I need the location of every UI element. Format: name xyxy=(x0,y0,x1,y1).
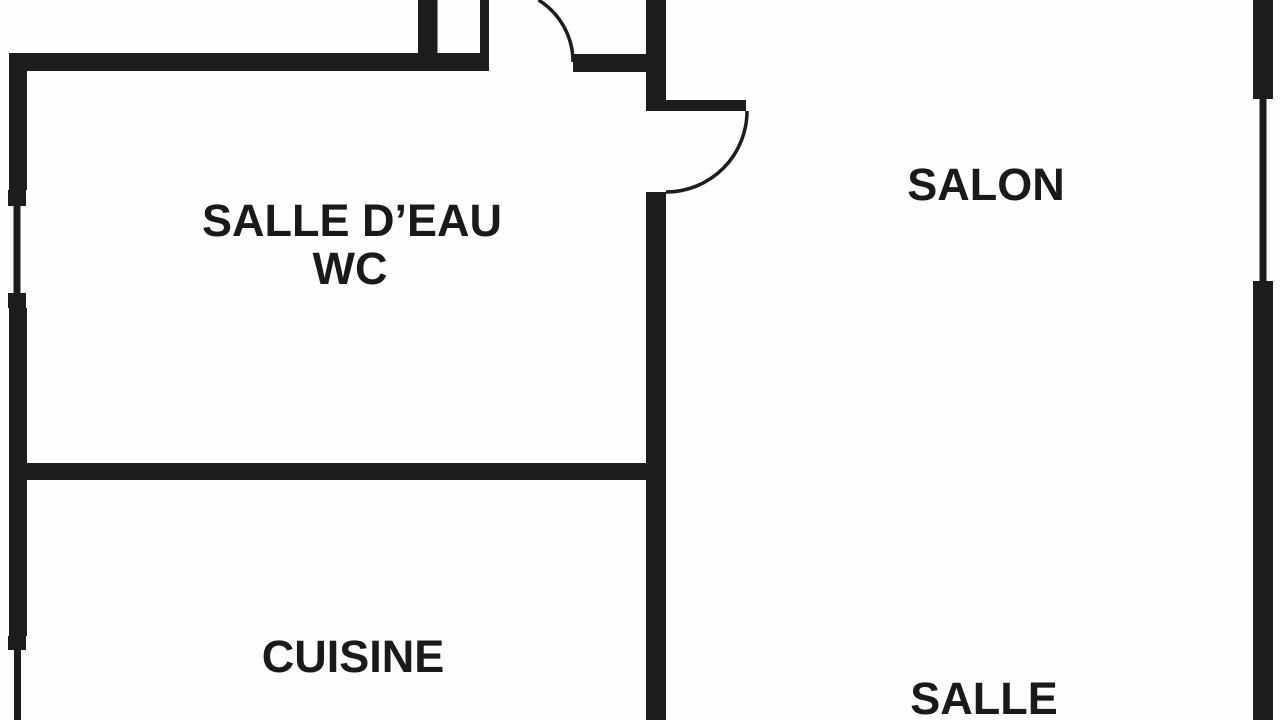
svg-text:CUISINE: CUISINE xyxy=(262,631,445,682)
svg-text:SALON: SALON xyxy=(907,159,1065,210)
svg-text:SALLE: SALLE xyxy=(910,673,1058,720)
svg-text:SALLE D’EAU: SALLE D’EAU xyxy=(202,195,502,246)
svg-text:WC: WC xyxy=(313,243,388,294)
